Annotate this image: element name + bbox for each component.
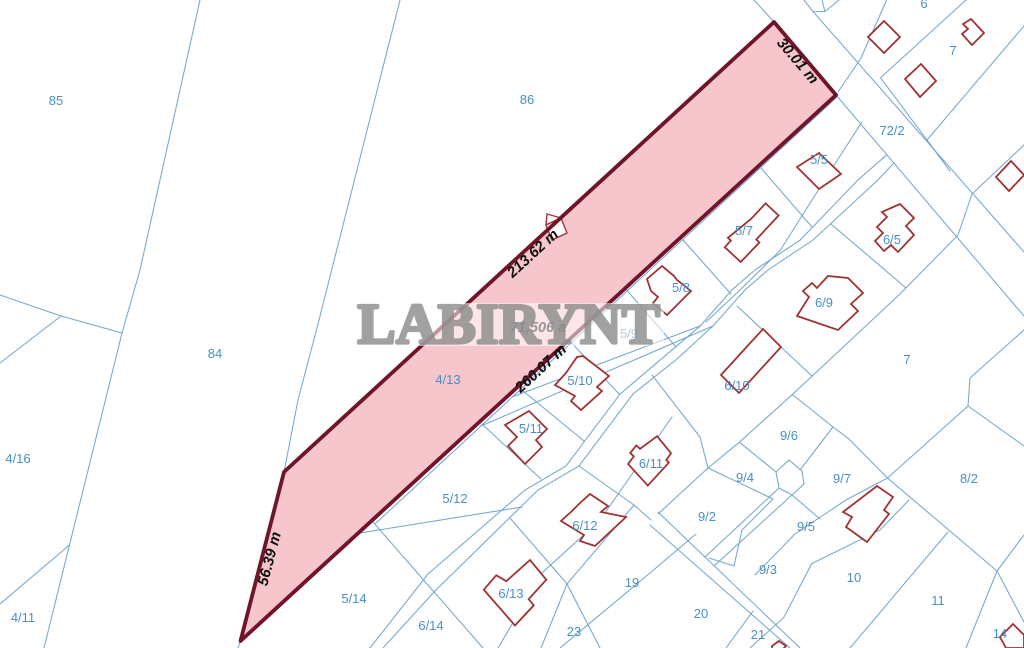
svg-text:8/2: 8/2 <box>960 471 978 486</box>
svg-text:6/14: 6/14 <box>418 618 443 633</box>
svg-text:5/11: 5/11 <box>519 421 543 436</box>
svg-text:5/8: 5/8 <box>672 280 690 295</box>
svg-text:6/12: 6/12 <box>572 518 597 533</box>
svg-text:5/14: 5/14 <box>341 591 366 606</box>
svg-text:84: 84 <box>208 346 222 361</box>
svg-text:4/16: 4/16 <box>5 451 30 466</box>
svg-text:5/7: 5/7 <box>735 223 753 238</box>
svg-text:21: 21 <box>751 627 765 642</box>
svg-text:10: 10 <box>847 570 861 585</box>
svg-text:11: 11 <box>931 593 945 608</box>
svg-text:20: 20 <box>694 606 708 621</box>
svg-text:9/2: 9/2 <box>698 509 716 524</box>
svg-text:14: 14 <box>993 626 1007 641</box>
svg-text:9/5: 9/5 <box>797 519 815 534</box>
svg-text:6/10: 6/10 <box>724 378 749 393</box>
svg-text:4/13: 4/13 <box>435 372 460 387</box>
svg-text:19: 19 <box>625 575 639 590</box>
svg-text:7: 7 <box>903 352 910 367</box>
svg-text:5/5: 5/5 <box>810 152 828 167</box>
svg-text:6/9: 6/9 <box>815 295 833 310</box>
svg-text:72/2: 72/2 <box>879 123 904 138</box>
svg-text:5/10: 5/10 <box>567 373 592 388</box>
svg-text:6: 6 <box>920 0 927 11</box>
svg-text:4/11: 4/11 <box>11 610 35 625</box>
svg-text:LABIRYNT: LABIRYNT <box>358 293 661 356</box>
svg-text:6/13: 6/13 <box>498 586 523 601</box>
svg-text:86: 86 <box>520 92 534 107</box>
svg-text:5/12: 5/12 <box>442 491 467 506</box>
svg-text:23: 23 <box>567 624 581 639</box>
svg-text:85: 85 <box>49 93 63 108</box>
svg-text:9/3: 9/3 <box>759 562 777 577</box>
svg-text:6/5: 6/5 <box>883 232 901 247</box>
svg-text:7: 7 <box>949 43 956 58</box>
svg-text:9/6: 9/6 <box>780 428 798 443</box>
svg-text:6/11: 6/11 <box>639 456 663 471</box>
svg-text:9/4: 9/4 <box>736 470 754 485</box>
svg-text:9/7: 9/7 <box>833 471 851 486</box>
